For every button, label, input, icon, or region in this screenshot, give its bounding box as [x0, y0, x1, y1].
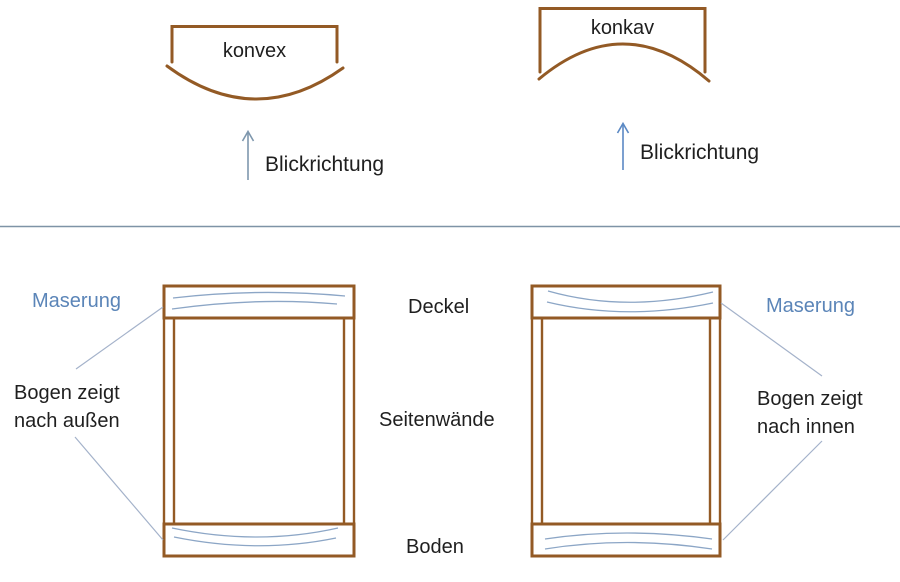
left-box-left-wall — [164, 318, 174, 524]
grain-note-left: Bogen zeigt nach außen — [14, 379, 120, 435]
left-bottom-grain-arc-1 — [172, 528, 338, 537]
grain-note-left-line1: Bogen zeigt — [14, 379, 120, 407]
left-lid-grain-arc-1 — [173, 292, 345, 298]
right-box-left-wall — [532, 318, 542, 524]
grain-label-left: Maserung — [32, 290, 121, 313]
right-bottom-grain-arc-1 — [545, 533, 712, 539]
view-direction-arrow-left — [243, 132, 254, 181]
grain-note-right: Bogen zeigt nach innen — [757, 385, 863, 441]
right-box-right-wall — [710, 318, 720, 524]
view-direction-arrow-right — [618, 124, 629, 171]
right-lid-grain-arc-2 — [547, 302, 713, 312]
right-box-bottom — [532, 524, 720, 556]
view-direction-label-right: Blickrichtung — [640, 141, 759, 165]
right-leader-line-bottom — [723, 441, 822, 540]
part-label-bottom: Boden — [406, 536, 464, 559]
concave-arc — [539, 44, 709, 81]
concave-label: konkav — [540, 17, 705, 40]
slide-canvas: konvex konkav Blickrichtung Blickrichtun… — [0, 0, 900, 582]
grain-note-left-line2: nach außen — [14, 407, 120, 435]
left-box-right-wall — [344, 318, 354, 524]
grain-note-right-line2: nach innen — [757, 413, 863, 441]
left-leader-line-top — [76, 307, 163, 369]
part-label-lid: Deckel — [408, 296, 469, 319]
grain-note-right-line1: Bogen zeigt — [757, 385, 863, 413]
left-leader-line-bottom — [75, 437, 163, 540]
right-bottom-grain-arc-2 — [545, 543, 712, 550]
convex-arc — [167, 66, 343, 99]
convex-label: konvex — [172, 40, 337, 63]
left-bottom-grain-arc-2 — [174, 537, 336, 546]
right-lid-grain-arc-1 — [548, 291, 713, 302]
grain-label-right: Maserung — [766, 295, 855, 318]
left-lid-grain-arc-2 — [172, 301, 337, 309]
part-label-side-walls: Seitenwände — [379, 409, 495, 432]
diagram-drawing — [0, 0, 900, 582]
view-direction-label-left: Blickrichtung — [265, 153, 384, 177]
